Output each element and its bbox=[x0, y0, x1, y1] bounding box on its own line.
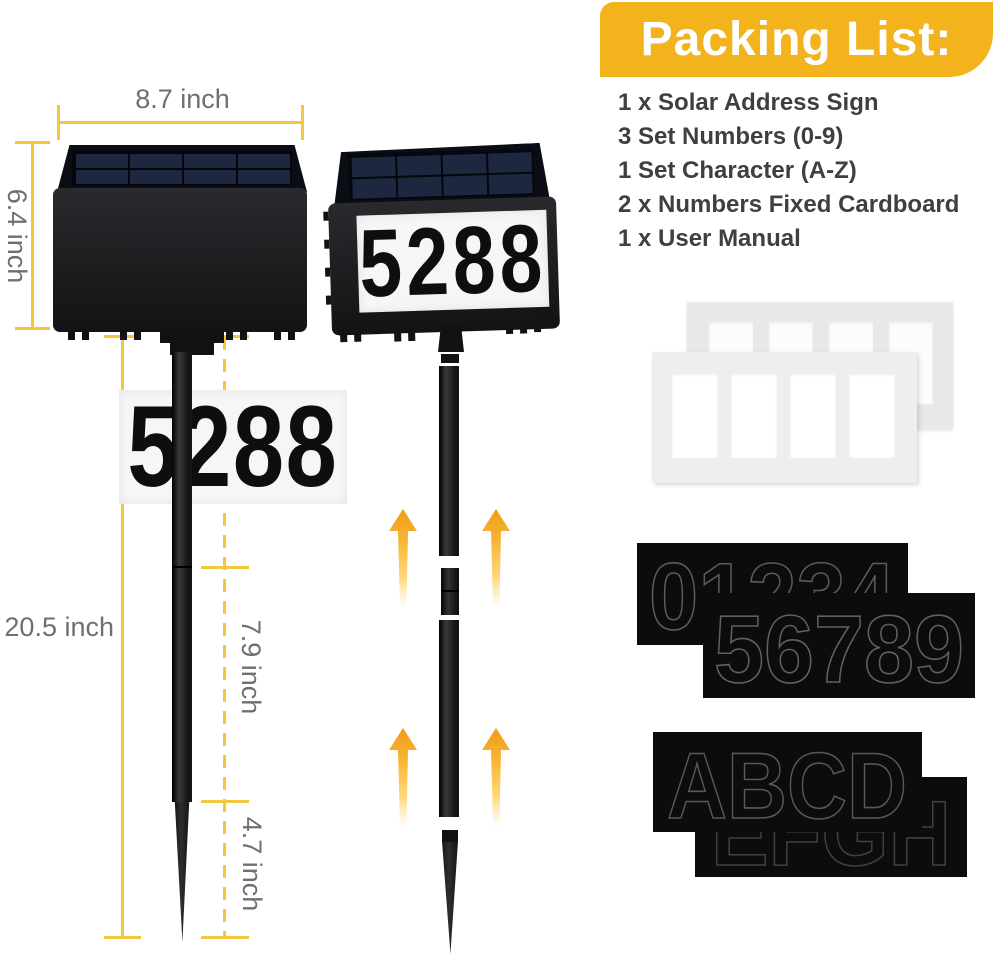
packing-list-item: 2 x Numbers Fixed Cardboard bbox=[618, 188, 1000, 222]
stake-total-length-label: 20.5 inch bbox=[2, 612, 114, 643]
dimension-tick bbox=[15, 327, 50, 330]
packing-list-item: 1 Set Character (A-Z) bbox=[618, 154, 1000, 188]
numbers-fixed-cardboard-front bbox=[652, 352, 917, 483]
letters-stencil-sheet-abcd: ABCD bbox=[653, 732, 922, 832]
pole-segment-upper bbox=[439, 366, 459, 556]
sign-width-dimension-line bbox=[59, 121, 303, 124]
dimension-tick bbox=[201, 936, 249, 939]
packing-list-item: 3 Set Numbers (0-9) bbox=[618, 120, 1000, 154]
dimension-tick bbox=[57, 105, 60, 140]
ground-spike bbox=[172, 802, 192, 942]
packing-list: 1 x Solar Address Sign 3 Set Numbers (0-… bbox=[618, 86, 1000, 256]
solar-panel bbox=[57, 145, 307, 192]
packing-list-banner: Packing List: bbox=[600, 2, 993, 77]
stake-spike-segment-label: 4.7 inch bbox=[239, 804, 267, 924]
solar-cells-grid bbox=[347, 148, 534, 201]
assemble-up-arrow bbox=[481, 508, 511, 608]
assemble-up-arrow bbox=[388, 508, 418, 608]
packing-list-item: 1 x Solar Address Sign bbox=[618, 86, 1000, 120]
solar-cells-grid bbox=[72, 150, 292, 186]
pole-coupler bbox=[441, 568, 459, 615]
spike-collar bbox=[442, 830, 458, 842]
address-number: 5288 bbox=[127, 390, 338, 504]
dimension-tick bbox=[301, 105, 304, 140]
assemble-up-arrow bbox=[388, 727, 418, 827]
sign-height-label: 6.4 inch bbox=[4, 176, 32, 296]
coupler-seam bbox=[441, 590, 459, 592]
stake-lower-segment-label: 7.9 inch bbox=[238, 607, 266, 727]
packing-list-item: 1 x User Manual bbox=[618, 222, 1000, 256]
packing-list-title: Packing List: bbox=[641, 12, 953, 67]
pole-connector-cap bbox=[441, 354, 459, 363]
pole-joint-seam bbox=[172, 566, 192, 568]
dimension-tick bbox=[15, 141, 50, 144]
sign-front-face: 5288 bbox=[328, 196, 560, 335]
sign-height-dimension-line bbox=[31, 143, 34, 330]
stake-mount-block bbox=[438, 324, 464, 352]
illuminated-number-plate: 5288 bbox=[119, 390, 347, 504]
stencil-digits: 56789 bbox=[714, 596, 964, 698]
assembled-stake-pole bbox=[172, 352, 192, 802]
stencil-letters: ABCD bbox=[667, 733, 907, 832]
illuminated-number-plate: 5288 bbox=[356, 210, 549, 313]
solar-address-sign-infographic: 8.7 inch 6.4 inch 20.5 inch 7.9 inch 7.9… bbox=[0, 0, 1000, 958]
address-sign-front-view: 5288 bbox=[53, 188, 307, 332]
address-sign-angled-view: 5288 bbox=[324, 130, 562, 337]
ground-spike bbox=[439, 842, 461, 954]
pole-segment-lower bbox=[439, 620, 459, 817]
address-number: 5288 bbox=[358, 210, 548, 312]
numbers-stencil-sheet-56789: 56789 bbox=[703, 593, 975, 698]
assemble-up-arrow bbox=[481, 727, 511, 827]
dimension-tick bbox=[201, 566, 249, 569]
sign-width-label: 8.7 inch bbox=[100, 84, 265, 115]
dimension-tick bbox=[104, 936, 141, 939]
dimension-tick bbox=[201, 800, 249, 803]
